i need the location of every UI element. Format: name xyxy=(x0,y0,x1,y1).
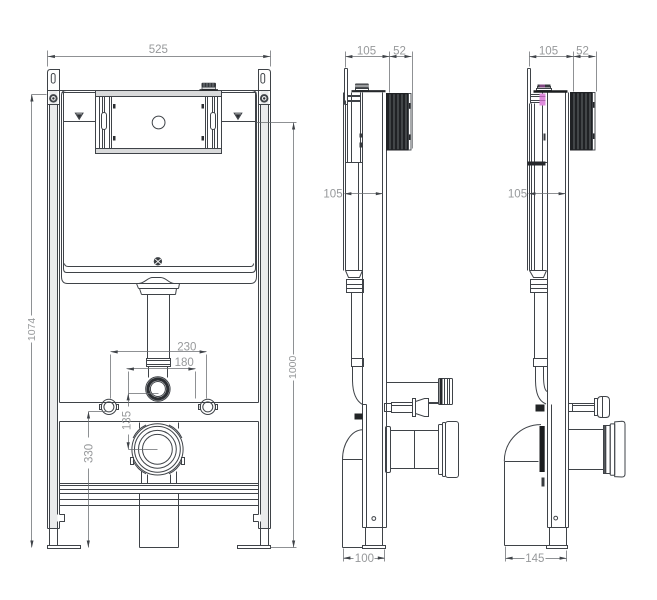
svg-text:330: 330 xyxy=(83,444,95,463)
svg-text:135: 135 xyxy=(121,411,133,430)
svg-text:52: 52 xyxy=(393,45,406,57)
svg-text:105: 105 xyxy=(508,189,527,201)
svg-text:230: 230 xyxy=(177,342,196,354)
svg-text:105: 105 xyxy=(539,45,558,57)
svg-text:100: 100 xyxy=(355,553,374,565)
svg-text:1000: 1000 xyxy=(287,355,299,379)
svg-text:105: 105 xyxy=(323,189,342,201)
svg-text:145: 145 xyxy=(525,553,544,565)
svg-text:525: 525 xyxy=(149,44,168,56)
svg-text:180: 180 xyxy=(175,357,194,369)
svg-text:1074: 1074 xyxy=(26,318,38,342)
svg-text:105: 105 xyxy=(357,45,376,57)
svg-text:52: 52 xyxy=(576,45,589,57)
